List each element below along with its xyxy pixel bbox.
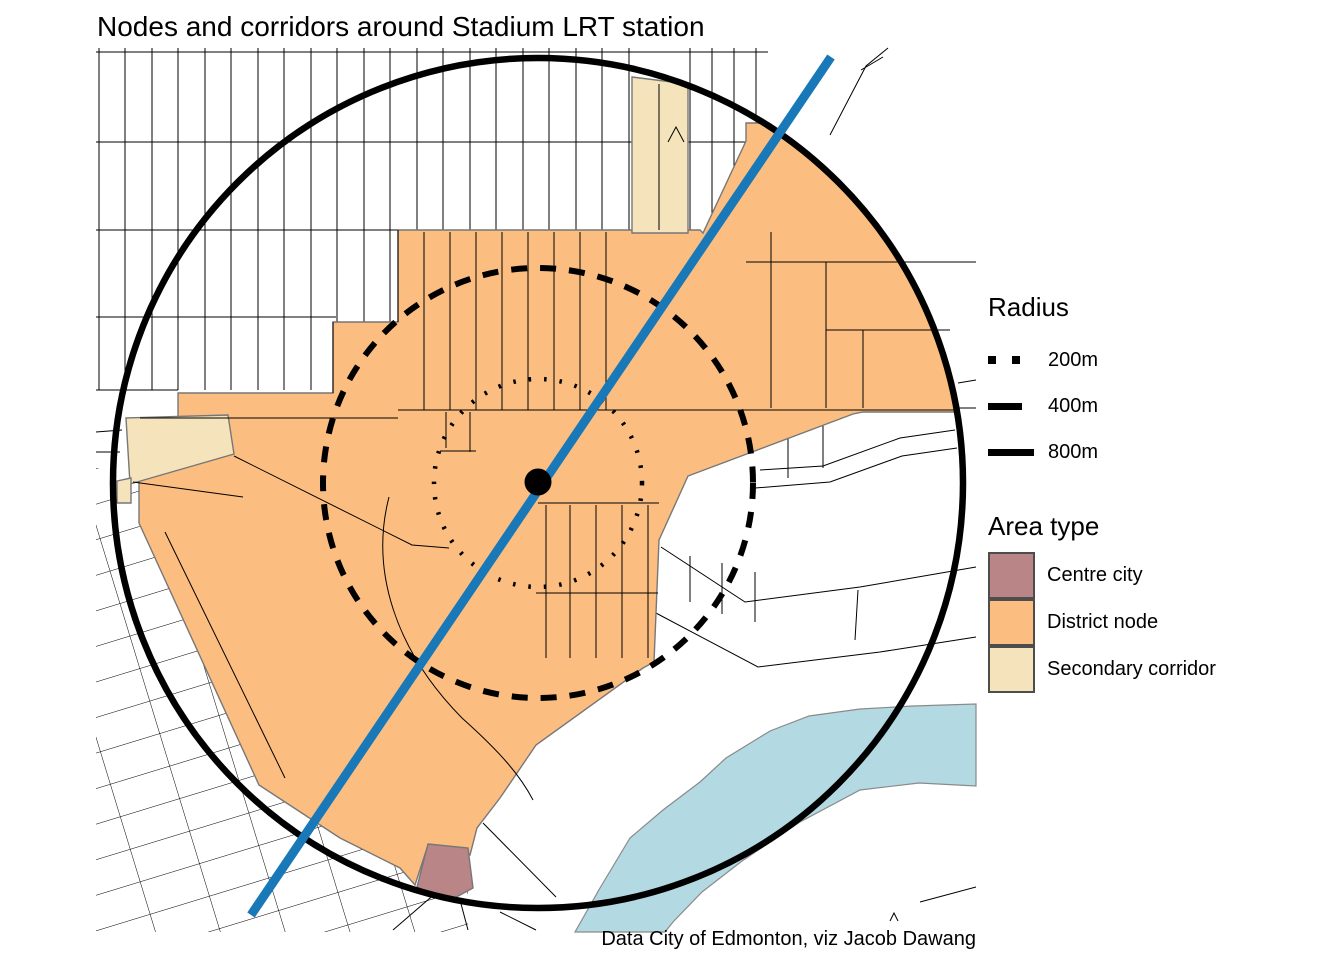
legend-item-200m: 200m [988, 337, 1338, 383]
solid-line-icon [988, 449, 1034, 456]
data-credit-caption: Data City of Edmonton, viz Jacob Dawang [440, 928, 976, 951]
legend-label-400m: 400m [1048, 395, 1098, 418]
secondary-corridor-piece-left [117, 478, 131, 503]
legend-label-secondary-corridor: Secondary corridor [1047, 658, 1216, 681]
page-title: Nodes and corridors around Stadium LRT s… [97, 10, 705, 44]
legend-radius-title: Radius [988, 292, 1338, 323]
station-marker-dot [525, 469, 552, 496]
legend: Radius 200m 400m 800m Area type Centre c… [988, 292, 1338, 693]
centre-city-swatch [988, 552, 1035, 599]
legend-label-800m: 800m [1048, 441, 1098, 464]
legend-item-800m: 800m [988, 429, 1338, 475]
map-figure: Nodes and corridors around Stadium LRT s… [0, 0, 1344, 960]
legend-item-400m: 400m [988, 383, 1338, 429]
legend-label-district-node: District node [1047, 611, 1158, 634]
legend-item-centre-city: Centre city [988, 552, 1338, 599]
legend-area-type-title: Area type [988, 511, 1338, 542]
secondary-corridor-band-top [632, 77, 688, 233]
secondary-corridor-swatch [988, 646, 1035, 693]
legend-item-district-node: District node [988, 599, 1338, 646]
dotted-line-icon [988, 356, 1034, 364]
legend-label-200m: 200m [1048, 349, 1098, 372]
legend-item-secondary-corridor: Secondary corridor [988, 646, 1338, 693]
dashed-line-icon [988, 403, 1034, 410]
legend-label-centre-city: Centre city [1047, 564, 1143, 587]
district-node-swatch [988, 599, 1035, 646]
